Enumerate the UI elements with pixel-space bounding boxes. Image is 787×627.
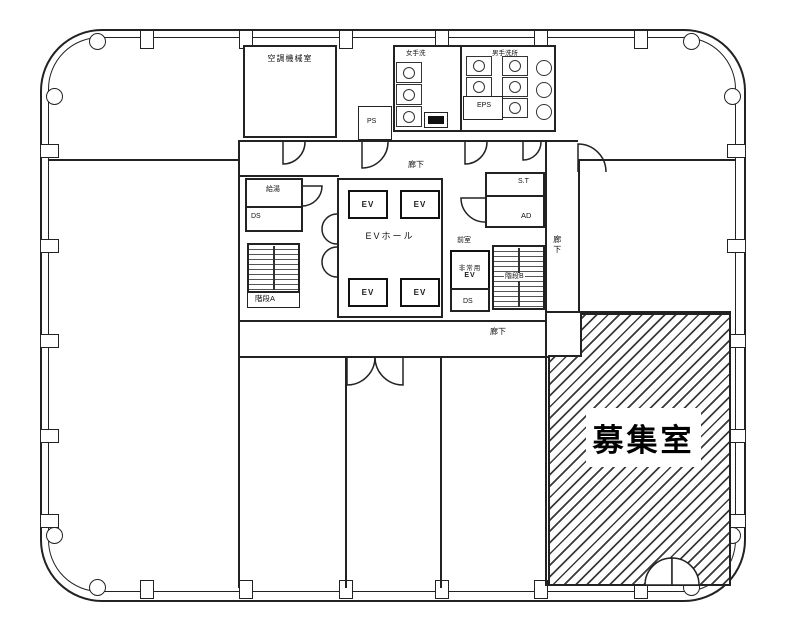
column-mark [140, 580, 154, 599]
toilet-stall [466, 77, 492, 97]
toilet-bowl-icon [509, 60, 521, 72]
emergency-ev-label: EV [464, 272, 475, 279]
corner-column-mark [89, 33, 106, 50]
ad-room [485, 195, 545, 228]
elevator-label: EV [414, 200, 427, 209]
toilet-bowl-icon [403, 111, 415, 123]
toilet-bowl-icon [473, 81, 485, 93]
emergency-elevator: 非常用 EV [450, 250, 490, 290]
wall [440, 356, 442, 588]
toilet-bowl-icon [403, 67, 415, 79]
machine-room-label: 空調機械室 [252, 55, 328, 64]
toilet-bowl-icon [509, 102, 521, 114]
wall [238, 320, 547, 322]
urinal-icon [536, 60, 552, 76]
toilet-stall [466, 56, 492, 76]
column-mark [727, 144, 746, 158]
eps-label: EPS [477, 102, 491, 110]
floor-plan: EV EV EV EV 非常用 EV 募集室 [0, 0, 787, 627]
elevator-2: EV [400, 190, 440, 219]
column-mark [634, 30, 648, 49]
sink-icon [428, 116, 444, 124]
toilet-stall [502, 77, 528, 97]
wall [578, 160, 580, 313]
column-mark [239, 580, 253, 599]
vacant-room-vestibule [548, 313, 582, 357]
vacant-room-label-box: 募集室 [586, 408, 701, 467]
toilet-stall [502, 56, 528, 76]
toilet-bowl-icon [509, 81, 521, 93]
wall [238, 356, 582, 358]
ev-hall-label: EVホール [355, 232, 425, 242]
elevator-3: EV [348, 278, 388, 307]
toilet-stall [396, 62, 422, 83]
toilet-bowl-icon [403, 89, 415, 101]
urinal-icon [536, 104, 552, 120]
wall [238, 140, 339, 142]
column-mark [339, 30, 353, 49]
toilet-stall [396, 84, 422, 105]
stairs-a-label: 階段A [254, 295, 276, 303]
corner-column-mark [724, 88, 741, 105]
corner-column-mark [46, 88, 63, 105]
column-mark [435, 580, 449, 599]
wall [578, 159, 736, 161]
elevator-4: EV [400, 278, 440, 307]
column-mark [40, 239, 59, 253]
st-label: S.T [518, 178, 529, 186]
women-toilet-label: 女手洗 [406, 50, 426, 57]
wall [49, 159, 238, 161]
column-mark [40, 334, 59, 348]
toilet-stall [502, 98, 528, 118]
corridor-right-label: 廊下 [552, 235, 561, 255]
column-mark [727, 239, 746, 253]
stair-rail [273, 246, 275, 290]
stairs-b-label: 階段B [504, 273, 525, 281]
elevator-label: EV [362, 200, 375, 209]
emergency-ev-label: 非常用 [459, 262, 482, 272]
corridor-bottom-label: 廊下 [490, 328, 506, 337]
wall [545, 140, 547, 586]
elevator-label: EV [362, 288, 375, 297]
column-mark [140, 30, 154, 49]
wall [337, 140, 578, 142]
corner-column-mark [46, 527, 63, 544]
column-mark [40, 144, 59, 158]
wall [238, 175, 339, 177]
column-mark [40, 514, 59, 528]
elevator-1: EV [348, 190, 388, 219]
st-room [485, 172, 545, 197]
anteroom-label: 前室 [457, 237, 471, 245]
wall [345, 356, 347, 588]
corridor-top-label: 廊下 [408, 161, 424, 170]
toilet-stall [396, 106, 422, 127]
corner-column-mark [683, 33, 700, 50]
men-toilet-label: 男手洗所 [492, 50, 518, 57]
wall [238, 140, 240, 588]
elevator-label: EV [414, 288, 427, 297]
ps-label: PS [367, 118, 376, 126]
urinal-icon [536, 82, 552, 98]
vacant-room-label: 募集室 [593, 415, 695, 460]
column-mark [40, 429, 59, 443]
toilet-bowl-icon [473, 60, 485, 72]
kyuto-label: 給湯 [266, 186, 280, 194]
ds-left-label: DS [251, 213, 261, 221]
ad-label: AD [521, 212, 531, 220]
ds-right-label: DS [463, 298, 473, 306]
corner-column-mark [89, 579, 106, 596]
